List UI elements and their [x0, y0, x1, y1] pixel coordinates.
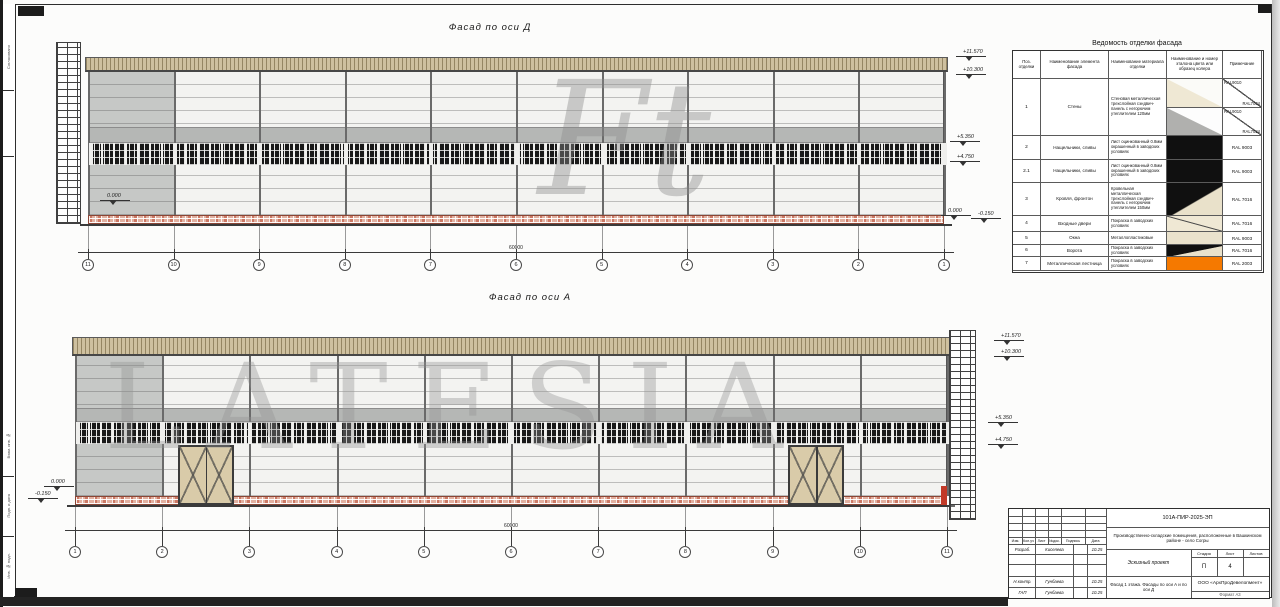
elevation-value: +5.350	[995, 415, 1012, 421]
elevation-value: 0.000	[107, 193, 121, 199]
axis-leader-line	[162, 530, 163, 546]
brick-plinth	[88, 215, 944, 224]
axis-leader-line	[602, 252, 603, 259]
format-note: Формат А3	[1192, 591, 1268, 597]
finish-table: Поз. отделкиНаименование элемента фасада…	[1012, 50, 1264, 273]
elevation-value: -0.150	[978, 211, 994, 217]
frame-stamp-label: Взам. инв. №	[6, 433, 11, 459]
axis-bubble: 10	[168, 259, 180, 271]
elevation-mark: +4.750	[988, 437, 1022, 450]
elevation-value: +11.570	[963, 49, 983, 55]
finish-row-material: Стеновая металлическая трехслойная сэндв…	[1109, 79, 1167, 136]
finish-table-title: Ведомость отделки фасада	[1012, 40, 1262, 47]
frame-stamp-label: Согласовано	[6, 45, 11, 69]
sheet-number: 4	[1218, 558, 1242, 575]
elevation-mark-arrow	[997, 444, 1005, 449]
color-sample	[1167, 245, 1223, 257]
elevation-mark-arrow	[950, 215, 958, 220]
finish-row-pos: 1	[1013, 79, 1041, 136]
finish-row-material: Покраска в заводских условиях	[1109, 257, 1167, 271]
finish-table-header: Наименование и номер эталона цвета или о…	[1167, 51, 1223, 79]
axis-leader-line	[424, 530, 425, 546]
elevation-mark: +11.570	[956, 49, 990, 62]
axis-leader-line	[944, 252, 945, 259]
elevation-value: +5.350	[957, 134, 974, 140]
sig-name: Киселева	[1036, 544, 1073, 554]
finish-row-note: RAL 9003	[1223, 136, 1262, 160]
corner-stamp-mark	[15, 588, 37, 597]
roof-fascia	[85, 57, 948, 72]
sheet-label: Лист	[1218, 550, 1242, 557]
ral-code: RAL9010	[1224, 109, 1241, 114]
finish-row-note: RAL 7016	[1223, 216, 1262, 232]
axis-leader-line	[687, 252, 688, 259]
frame-stamp-box: Взам. инв. №	[3, 416, 14, 477]
sheets-label: Листов	[1244, 550, 1268, 557]
drawing-sheet: Согласовано Взам. инв. № Подп. и дата Ин…	[0, 0, 1280, 607]
sig-col-koluch: Кол.уч	[1022, 537, 1035, 544]
elevation-mark-arrow	[37, 498, 45, 503]
elevation-value: +10.300	[1001, 349, 1021, 355]
company-name: ООО «АрхПроДевелопмент»	[1192, 577, 1268, 590]
elevation-value: 0.000	[948, 208, 962, 214]
frame-stamp-label: Подп. и дата	[6, 494, 11, 518]
axis-leader-line	[430, 252, 431, 259]
finish-row-pos: 2	[1013, 136, 1041, 160]
sig-role: ГАП	[1010, 587, 1035, 598]
window-band-gap	[173, 143, 177, 165]
axis-bubble: 10	[854, 546, 866, 558]
axis-leader-line	[174, 252, 175, 259]
finish-row-material: Металлопластиковые	[1109, 232, 1167, 245]
elevation-value: -0.150	[35, 491, 51, 497]
frame-stamp-box: Согласовано	[3, 24, 14, 91]
finish-row-note: RAL 7016	[1223, 245, 1262, 257]
doc-code: 101А-ПИР-2025-ЭП	[1107, 510, 1268, 526]
axis-leader-line	[75, 530, 76, 546]
axis-bubble: 1	[938, 259, 950, 271]
finish-row-element: Нащельники, сливы	[1041, 160, 1109, 183]
facade-a-title: Фасад по оси А	[420, 292, 640, 303]
ral-code: RAL7004	[1243, 101, 1260, 106]
elevation-mark-arrow	[109, 200, 117, 205]
finish-row-element: Ворота	[1041, 245, 1109, 257]
elevation-mark: +10.300	[956, 67, 990, 80]
axis-bubble: 5	[596, 259, 608, 271]
axis-leader-line	[598, 530, 599, 546]
axis-leader-line	[249, 530, 250, 546]
elevation-mark-arrow	[965, 74, 973, 79]
elevation-mark-arrow	[980, 218, 988, 223]
ral-code: RAL7024	[1243, 129, 1260, 134]
sig-name: Гунбаева	[1036, 587, 1073, 598]
elevation-mark-arrow	[959, 161, 967, 166]
finish-table-header: Поз. отделки	[1013, 51, 1041, 79]
project-name: Производственно-складские помещения, рас…	[1109, 528, 1266, 548]
finish-row-material: Покраска в заводских условиях	[1109, 245, 1167, 257]
finish-row-material: Лист оцинкованный 0.8мм окрашенный в зав…	[1109, 136, 1167, 160]
finish-table-header: Наименование материала отделки	[1109, 51, 1167, 79]
elevation-mark-arrow	[997, 422, 1005, 427]
color-sample	[1167, 183, 1223, 216]
sheet-title: Фасад 1 этажа. Фасады по оси А и по оси …	[1107, 577, 1190, 597]
axis-bubble: 6	[505, 546, 517, 558]
finish-row-pos: 6	[1013, 245, 1041, 257]
gate-door-divider	[816, 447, 818, 503]
elevation-mark: +11.570	[994, 333, 1028, 346]
frame-stamp-box: Инв. № подл.	[3, 536, 14, 595]
sig-col-list: Лист	[1035, 537, 1048, 544]
ladder-base-mark	[941, 486, 947, 505]
sheet-bottom-shadow	[0, 597, 1008, 606]
finish-row-note: RAL 7016	[1223, 183, 1262, 216]
elevation-value: +11.570	[1001, 333, 1021, 339]
elevation-mark: -0.150	[971, 211, 1005, 224]
elevation-value: +10.300	[963, 67, 983, 73]
axis-leader-line	[259, 252, 260, 259]
axis-bubble: 5	[418, 546, 430, 558]
corner-stamp-mark	[1258, 4, 1271, 13]
sig-role: Разраб.	[1010, 544, 1035, 554]
axis-leader-line	[345, 252, 346, 259]
axis-leader-line	[685, 530, 686, 546]
window-band-gap	[943, 143, 947, 165]
axis-leader-line	[858, 252, 859, 259]
axis-leader-line	[516, 252, 517, 259]
elevation-value: +4.750	[957, 154, 974, 160]
corner-stamp-mark	[18, 6, 44, 16]
finish-table-header: Примечание	[1223, 51, 1262, 79]
finish-row-note: RAL9010RAL7004	[1223, 79, 1262, 108]
sig-name: Гунбаева	[1036, 576, 1073, 587]
axis-bubble: 9	[767, 546, 779, 558]
finish-row-pos: 3	[1013, 183, 1041, 216]
finish-row-pos: 4	[1013, 216, 1041, 232]
elevation-mark-arrow	[959, 141, 967, 146]
axis-bubble: 4	[331, 546, 343, 558]
color-sample	[1167, 232, 1223, 245]
axis-bubble: 8	[339, 259, 351, 271]
finish-row-element: Нащельники, сливы	[1041, 136, 1109, 160]
color-sample	[1167, 136, 1223, 160]
sig-col-date: Дата	[1085, 537, 1106, 544]
elevation-value: 0.000	[51, 479, 65, 485]
color-sample	[1167, 216, 1223, 232]
sig-date: 10.25	[1088, 576, 1106, 587]
color-sample	[1167, 160, 1223, 183]
window-band-gap	[429, 143, 433, 165]
axis-leader-line	[947, 530, 948, 546]
finish-row-pos: 7	[1013, 257, 1041, 271]
doc-type: Эскизный проект	[1107, 550, 1190, 575]
facade-d-title: Фасад по оси Д	[380, 22, 600, 33]
elevation-mark: 0.000	[941, 208, 975, 221]
axis-bubble: 11	[82, 259, 94, 271]
axis-leader-line	[773, 252, 774, 259]
finish-row-material: Кровельная металлическая трехслойная сэн…	[1109, 183, 1167, 216]
elevation-mark-arrow	[1003, 356, 1011, 361]
window-band-gap	[344, 143, 348, 165]
finish-row-element: Кровля, фронтон	[1041, 183, 1109, 216]
wall-panels	[88, 72, 944, 215]
axis-leader-line	[860, 530, 861, 546]
sig-date: 10.25	[1088, 587, 1106, 598]
elevation-mark-arrow	[1003, 340, 1011, 345]
elevation-mark-arrow	[965, 56, 973, 61]
frame-stamp-box: Подп. и дата	[3, 476, 14, 537]
sig-col-sign: Подпись	[1061, 537, 1085, 544]
finish-row-element: Окна	[1041, 232, 1109, 245]
finish-table-header: Наименование элемента фасада	[1041, 51, 1109, 79]
watermark-monogram: Ft	[538, 48, 711, 232]
color-sample	[1167, 79, 1223, 108]
window-band	[89, 143, 943, 165]
axis-bubble: 3	[767, 259, 779, 271]
color-sample	[1167, 257, 1223, 271]
window-band-gap	[258, 143, 262, 165]
finish-row-material: Покраска в заводских условиях	[1109, 216, 1167, 232]
sig-date: 10.25	[1088, 544, 1106, 554]
elevation-mark: +5.350	[950, 134, 984, 147]
finish-row-element: Входные двери	[1041, 216, 1109, 232]
axis-leader-line	[337, 530, 338, 546]
frame-stamp-label: Инв. № подл.	[6, 553, 11, 579]
finish-row-note: RAL9010RAL7024	[1223, 108, 1262, 137]
frame-stamp-box	[3, 90, 14, 157]
finish-row-material: Лист оцинкованный 0.8мм окрашенный в зав…	[1109, 160, 1167, 183]
axis-bubble: 1	[69, 546, 81, 558]
window-band-gap	[89, 143, 93, 165]
finish-row-note: RAL 9003	[1223, 160, 1262, 183]
sig-col-doc: №док.	[1048, 537, 1061, 544]
finish-row-note: RAL 2003	[1223, 257, 1262, 271]
metal-ladder	[949, 330, 976, 520]
window-band-gap	[515, 143, 519, 165]
axis-leader-line	[511, 530, 512, 546]
finish-row-element: Стены	[1041, 79, 1109, 136]
stage-value: П	[1192, 558, 1216, 575]
metal-ladder	[56, 42, 81, 224]
title-block: 101А-ПИР-2025-ЭП Производственно-складск…	[1008, 508, 1270, 599]
stage-label: Стадия	[1192, 550, 1216, 557]
sheet-right-shadow	[1272, 0, 1280, 607]
window-band-gap	[857, 143, 861, 165]
finish-row-element: Металлическая лестница	[1041, 257, 1109, 271]
finish-row-pos: 5	[1013, 232, 1041, 245]
elevation-mark: 0.000	[100, 193, 134, 206]
finish-row-pos: 2.1	[1013, 160, 1041, 183]
axis-bubble: 11	[941, 546, 953, 558]
window-band-gap	[772, 143, 776, 165]
ral-code: RAL9010	[1224, 80, 1241, 85]
frame-left-strip: Согласовано Взам. инв. № Подп. и дата Ин…	[3, 4, 16, 596]
sig-col-izm: Изм.	[1009, 537, 1022, 544]
color-sample	[1167, 108, 1223, 137]
watermark-text: LATESIA	[104, 338, 807, 476]
axis-leader-line	[773, 530, 774, 546]
elevation-mark: +5.350	[988, 415, 1022, 428]
elevation-mark: +10.300	[994, 349, 1028, 362]
sig-role: Н.контр.	[1010, 576, 1035, 587]
axis-bubble: 6	[510, 259, 522, 271]
window-band-gap	[859, 422, 863, 444]
elevation-mark: -0.150	[28, 491, 62, 504]
window-band-gap	[76, 422, 80, 444]
elevation-mark: +4.750	[950, 154, 984, 167]
axis-leader-line	[88, 252, 89, 259]
elevation-value: +4.750	[995, 437, 1012, 443]
finish-row-note: RAL 9003	[1223, 232, 1262, 245]
